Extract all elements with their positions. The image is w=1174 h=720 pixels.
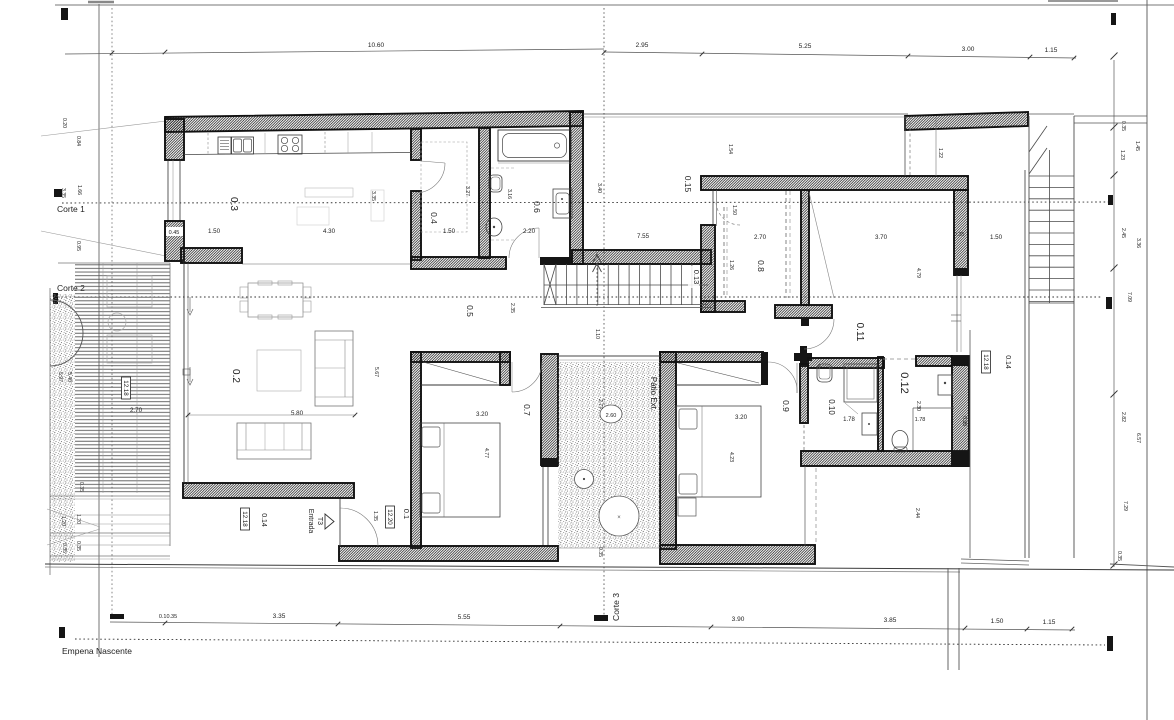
svg-text:4.79: 4.79 [915,268,921,278]
svg-text:0.84: 0.84 [75,136,81,146]
svg-text:4.77: 4.77 [483,448,489,458]
svg-text:0.14: 0.14 [260,513,267,527]
svg-text:1.26: 1.26 [728,260,734,270]
svg-text:0.8: 0.8 [756,260,766,272]
svg-text:1.78: 1.78 [915,417,926,423]
svg-text:T3: T3 [316,517,323,525]
svg-text:2.35: 2.35 [509,303,515,313]
svg-text:1.15: 1.15 [1045,47,1058,54]
svg-text:0.95: 0.95 [75,241,81,251]
svg-text:1.22: 1.22 [937,148,943,158]
svg-text:3.27: 3.27 [464,186,470,196]
svg-text:1.50: 1.50 [208,228,221,235]
svg-text:1.50: 1.50 [990,234,1003,241]
svg-text:0.35: 0.35 [961,416,967,426]
svg-text:1.35: 1.35 [372,511,378,521]
svg-text:0.9: 0.9 [781,400,791,412]
svg-text:0.10.35: 0.10.35 [159,614,177,620]
svg-text:3.90: 3.90 [732,616,745,623]
svg-text:1.23: 1.23 [1119,150,1125,160]
svg-text:1.15: 1.15 [1043,619,1056,626]
svg-text:3.40: 3.40 [596,183,602,193]
svg-text:7.09: 7.09 [1126,292,1132,302]
svg-text:0.7: 0.7 [522,404,532,416]
svg-text:2.82: 2.82 [1120,412,1126,422]
svg-text:3.00: 3.00 [962,46,975,53]
svg-text:0.3: 0.3 [228,197,239,211]
svg-text:2.95: 2.95 [636,42,649,49]
svg-text:2.30: 2.30 [915,401,921,411]
svg-text:3.16: 3.16 [506,189,512,199]
svg-text:10.60: 10.60 [368,42,385,49]
svg-text:Corte 3: Corte 3 [611,593,621,621]
svg-text:1.54: 1.54 [727,144,733,154]
svg-text:3.20: 3.20 [476,411,489,418]
svg-text:5.55: 5.55 [458,614,471,621]
svg-text:5.80: 5.80 [291,410,304,417]
svg-text:1.50: 1.50 [991,618,1004,625]
svg-text:7.55: 7.55 [637,233,650,240]
svg-text:12.18: 12.18 [241,511,248,527]
svg-text:3.20: 3.20 [735,414,748,421]
svg-text:1.78: 1.78 [843,417,855,423]
svg-text:12.18: 12.18 [122,380,129,396]
svg-text:0.6: 0.6 [532,201,542,213]
svg-text:5.25: 5.25 [799,43,812,50]
svg-text:1.45: 1.45 [1134,141,1140,151]
svg-text:4.23: 4.23 [728,452,734,462]
svg-text:2.45: 2.45 [1120,228,1126,238]
svg-text:0.35: 0.35 [75,541,81,551]
svg-text:4.30: 4.30 [323,228,336,235]
svg-text:12.20: 12.20 [386,509,393,525]
svg-text:0.11: 0.11 [854,323,865,342]
svg-text:0.13: 0.13 [692,270,701,285]
svg-text:2.44: 2.44 [914,508,920,518]
svg-text:2.77: 2.77 [597,399,603,409]
svg-text:7.29: 7.29 [1122,501,1128,511]
svg-text:×: × [617,515,621,521]
svg-text:1.10: 1.10 [594,329,600,339]
svg-text:3.35: 3.35 [370,191,376,201]
svg-text:0.10: 0.10 [827,399,836,415]
svg-text:3.70: 3.70 [875,234,888,241]
svg-text:0.4: 0.4 [429,212,439,224]
svg-text:1.50: 1.50 [731,205,737,215]
svg-text:Corte 1: Corte 1 [57,204,85,214]
svg-text:3.85: 3.85 [884,617,897,624]
svg-text:0.15: 0.15 [683,176,693,193]
svg-text:3.35: 3.35 [60,188,66,198]
svg-text:0.20: 0.20 [61,118,67,128]
svg-text:12.18: 12.18 [982,354,989,370]
svg-text:3.35: 3.35 [273,613,286,620]
svg-text:0.35: 0.35 [954,232,965,238]
svg-text:0.2: 0.2 [230,369,241,383]
svg-text:0.5: 0.5 [465,305,475,317]
svg-text:2.20: 2.20 [523,228,536,235]
svg-text:Pátio Ext.: Pátio Ext. [649,377,658,411]
svg-text:0.14: 0.14 [1004,355,1011,369]
svg-text:5.67: 5.67 [373,367,379,377]
svg-text:0.45: 0.45 [169,230,180,236]
svg-text:2.70: 2.70 [130,407,143,414]
svg-text:6.57: 6.57 [1135,433,1141,443]
svg-text:3.36: 3.36 [1135,238,1141,248]
svg-text:0.12: 0.12 [898,372,910,393]
svg-text:0.35: 0.35 [1116,551,1122,561]
svg-text:2.60: 2.60 [606,413,617,419]
svg-text:0.1: 0.1 [402,509,411,519]
svg-text:Empena Nascente: Empena Nascente [62,646,132,656]
svg-text:Entrada: Entrada [307,509,314,534]
svg-text:0.35: 0.35 [597,547,603,557]
svg-text:1.66: 1.66 [76,185,82,195]
svg-text:2.70: 2.70 [754,234,767,241]
svg-text:0.35: 0.35 [1120,121,1126,131]
svg-text:1.50: 1.50 [443,228,456,235]
